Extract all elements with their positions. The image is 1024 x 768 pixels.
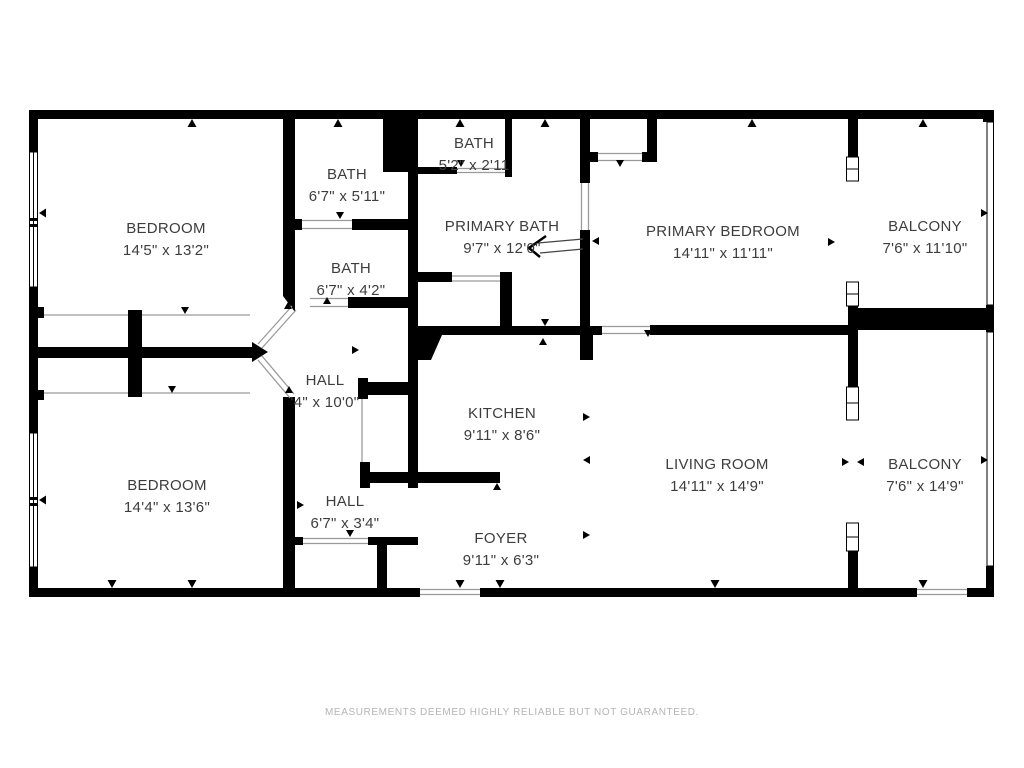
floor-plan: BEDROOM14'5" x 13'2"BATH6'7" x 5'11"BATH… <box>0 0 1024 768</box>
room-label-bath-mid: BATH6'7" x 4'2" <box>317 260 386 299</box>
room-label-bath-top: BATH6'7" x 5'11" <box>309 166 385 205</box>
disclaimer-text: MEASUREMENTS DEEMED HIGHLY RELIABLE BUT … <box>0 707 1024 718</box>
room-label-hall-main: HALL'4" x 10'0" <box>291 372 360 411</box>
room-label-primary-bedroom: PRIMARY BEDROOM14'11" x 11'11" <box>646 223 800 262</box>
room-label-balcony-bottom: BALCONY7'6" x 14'9" <box>886 456 964 495</box>
interior-walls <box>36 110 858 597</box>
room-label-foyer: FOYER9'11" x 6'3" <box>463 530 539 569</box>
floorplan-page: BEDROOM14'5" x 13'2"BATH6'7" x 5'11"BATH… <box>0 0 1024 768</box>
room-label-living-room: LIVING ROOM14'11" x 14'9" <box>665 456 768 495</box>
room-label-balcony-top: BALCONY7'6" x 11'10" <box>882 218 967 257</box>
room-label-bedroom-top: BEDROOM14'5" x 13'2" <box>123 220 209 259</box>
room-label-hall-small: HALL6'7" x 3'4" <box>311 493 380 532</box>
room-label-bedroom-bottom: BEDROOM14'4" x 13'6" <box>124 477 210 516</box>
room-label-bath-small: BATH5'2" x 2'11 <box>439 135 510 174</box>
room-label-kitchen: KITCHEN9'11" x 8'6" <box>464 405 540 444</box>
